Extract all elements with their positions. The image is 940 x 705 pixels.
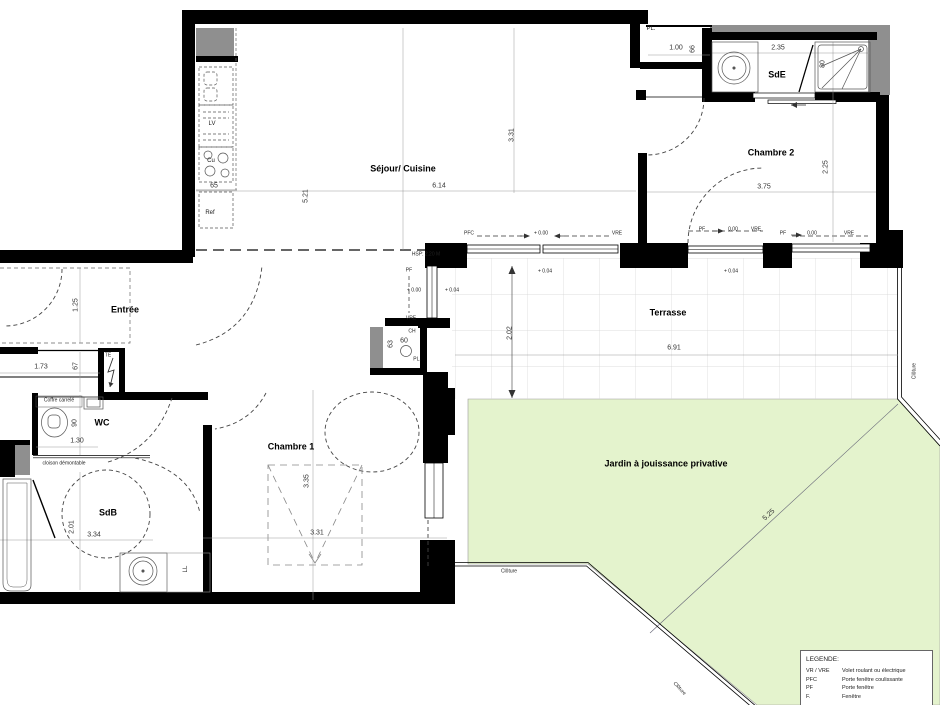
wall-ch1-left [203,425,212,603]
floor-plan-drawing [0,0,940,705]
dim-ch2-width: 3.75 [757,184,771,191]
dim-terrasse-height: 2.02 [507,326,514,340]
label-vre-west: VRE [406,317,416,322]
dim-ch-closet-w: 60 [400,338,408,345]
bathtub [3,479,31,591]
wall-bottom [0,592,455,604]
kitchen-sink [199,67,233,105]
dim-ch1-width: 3.31 [310,530,324,537]
dim-entree: 1.25 [73,298,80,312]
door-entree [5,269,62,326]
dim-sejour-width: 6.14 [432,183,446,190]
dim-kitchen: 65 [210,183,218,190]
legend-label: Fenêtre [842,694,861,700]
label-zero-ch2b: 0.00 [807,232,817,237]
label-level-00-windows: + 0.00 [534,232,548,237]
label-cloison: cloison démontable [42,462,85,467]
dim-placard-depth: 66 [690,45,697,53]
label-coffre: Coffre carrelé [44,399,74,404]
legend-title: LEGENDE: [806,656,927,663]
label-pf-ch2b: PF [780,232,786,237]
label-pf-west: PF [406,269,412,274]
label-cooktop: Cu [207,158,215,164]
door-wc [108,398,172,462]
legend-abbr: F. [806,694,842,700]
room-label-terrasse: Terrasse [650,309,687,318]
dim-sejour-height: 5.21 [303,189,310,203]
room-label-sejour: Séjour/ Cuisine [370,165,436,174]
dim-sdb-height: 2.01 [69,520,76,534]
water-heater [401,346,412,357]
label-vre-sejour: VRE [612,232,622,237]
wall-sde-top [710,32,877,40]
legend-row: F. Fenêtre [806,694,927,700]
label-hsp: HSP: 2.20 M [412,253,440,258]
label-level-04-a: + 0.04 [445,289,459,294]
sde-basin [712,42,758,92]
sdb-basin [120,553,167,592]
wall-right [876,95,889,243]
dim-ch-closet-h: 63 [388,340,395,348]
legend-label: Volet roulant ou électrique [842,668,906,674]
dim-sdb-width: 3.34 [87,532,101,539]
dim-terrasse-width: 6.91 [667,345,681,352]
label-vre-ch2: VRE [751,228,761,233]
room-label-chambre1: Chambre 1 [268,443,315,452]
floor-plan: Séjour/ Cuisine Chambre 2 SdE Entrée WC … [0,0,940,705]
label-placard-ch: PL. [413,358,421,363]
dim-couloir-width: 1.73 [34,364,48,371]
dim-sejour-depth: 3.31 [509,128,516,142]
label-washer: LL [183,566,189,573]
cooktop [199,147,233,182]
door-ch2 [647,98,704,155]
room-label-entree: Entrée [111,306,139,315]
toilet [42,408,68,437]
dishwasher [199,105,233,147]
sdb-door-leaf [33,480,55,538]
room-label-sdb: SdB [99,509,117,518]
label-zero-ch2: 0.00 [728,228,738,233]
legend-row: PFC Porte fenêtre coulissante [806,677,927,683]
dim-sde-width: 2.35 [771,45,785,52]
dim-ch1-height: 3.35 [304,474,311,488]
label-cloture-bottom: Clôture [501,570,517,575]
wall-top [182,10,648,24]
dim-wc-width: 1.30 [70,438,84,445]
label-refrigerator: Ref [205,210,214,216]
legend-label: Porte fenêtre coulissante [842,677,903,683]
wall-divider-sejour-ch2 [638,153,647,247]
electrical-panel-arrow [108,358,114,387]
legend-abbr: PF [806,685,842,691]
dim-wc-depth: 90 [72,419,79,427]
label-level-04-c: + 0.04 [724,270,738,275]
door-ch1 [215,393,266,429]
kitchen-duct [196,28,234,60]
ceiling-slope-ch1 [268,465,362,565]
label-water-heater: CH [408,330,415,335]
shower-door [799,45,813,92]
refrigerator [199,192,233,228]
label-vre-ch2b: VRE [844,232,854,237]
dim-ch2-height: 2.25 [823,160,830,174]
room-label-wc: WC [95,419,110,428]
terrace-grid [452,258,898,399]
wall-entree-top [0,250,193,263]
sliding-door-sde [753,93,815,98]
legend-box: LEGENDE: VR / VRE Volet roulant ou élect… [800,650,933,705]
label-placard-top: PL. [646,26,655,32]
legend-abbr: PFC [806,677,842,683]
wc-sink [84,397,103,409]
dim-shower: 80 [820,60,827,68]
legend-row: VR / VRE Volet roulant ou électrique [806,668,927,674]
dim-placard-width: 1.00 [669,45,683,52]
room-label-sde: SdE [768,71,786,80]
label-level-00-west: + 0.00 [407,289,421,294]
label-level-04-b: + 0.04 [538,270,552,275]
label-pf-ch2: PF [699,228,705,233]
dim-couloir-depth: 67 [73,362,80,370]
label-pfc: PFC [464,232,474,237]
label-cloture-right: Clôture [913,363,918,379]
legend-abbr: VR / VRE [806,668,842,674]
legend-row: PF Porte fenêtre [806,685,927,691]
label-dishwasher: LV [209,121,216,127]
room-label-jardin: Jardin à jouissance privative [604,460,727,469]
room-label-chambre2: Chambre 2 [748,149,795,158]
label-electrical-panel: TE [105,354,111,359]
wall-left-upper [182,10,195,257]
legend-label: Porte fenêtre [842,685,874,691]
